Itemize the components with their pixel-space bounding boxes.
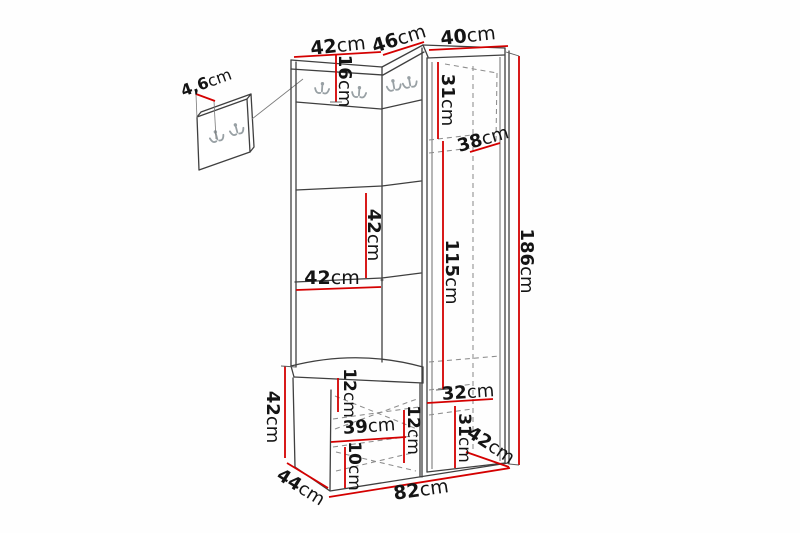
coat-hook-icon xyxy=(402,75,418,89)
dim-label-bench-top-inset: 12cm xyxy=(339,368,359,418)
hidden-shelf-line xyxy=(429,356,500,362)
dim-label-total-height: 186cm xyxy=(517,228,538,293)
dim-label-bench-right-inset: 12cm xyxy=(403,405,423,455)
right-cabinet xyxy=(422,45,509,477)
dim-label-drawer-width: 39cm xyxy=(342,414,396,439)
dim-label-bench-height: 42cm xyxy=(263,391,284,444)
shelf-line xyxy=(296,181,421,190)
dim-label-drawer-bottom-height: 10cm xyxy=(344,441,364,491)
dim-label-shelf-section-height: 42cm xyxy=(364,209,385,262)
dim-label-door-section-height: 115cm xyxy=(442,239,463,304)
extension-line xyxy=(196,95,197,118)
dimension-labels: 4,6cm 42cm 46cm 40cm 16cm 31cm 38cm 42cm… xyxy=(178,20,538,509)
bench-cushion xyxy=(291,358,423,367)
dim-label-cabinet-inner-depth: 38cm xyxy=(455,122,511,157)
diagram-svg: 4,6cm 42cm 46cm 40cm 16cm 31cm 38cm 42cm… xyxy=(0,0,800,533)
dim-label-shelf-width: 42cm xyxy=(304,267,359,289)
dim-line-drawer-width xyxy=(331,437,406,442)
wall-hook-panel xyxy=(196,94,254,170)
dim-label-top-corner-width: 46cm xyxy=(369,20,428,57)
coat-hook-icon xyxy=(315,82,330,94)
hook-rail-bottom xyxy=(296,100,421,109)
dim-label-panel-depth: 4,6cm xyxy=(178,64,234,100)
dim-label-hook-rail-height: 16cm xyxy=(335,55,356,108)
dim-line-panel-depth xyxy=(196,94,215,101)
furniture-dimension-diagram: 4,6cm 42cm 46cm 40cm 16cm 31cm 38cm 42cm… xyxy=(0,0,800,533)
coat-hook-icon xyxy=(386,78,402,92)
open-door-hidden-edge xyxy=(445,64,497,73)
dim-label-cabinet-shelf-width: 32cm xyxy=(441,380,495,405)
dim-label-cabinet-top-section: 31cm xyxy=(438,74,459,127)
dim-label-top-right-width: 40cm xyxy=(439,22,496,50)
